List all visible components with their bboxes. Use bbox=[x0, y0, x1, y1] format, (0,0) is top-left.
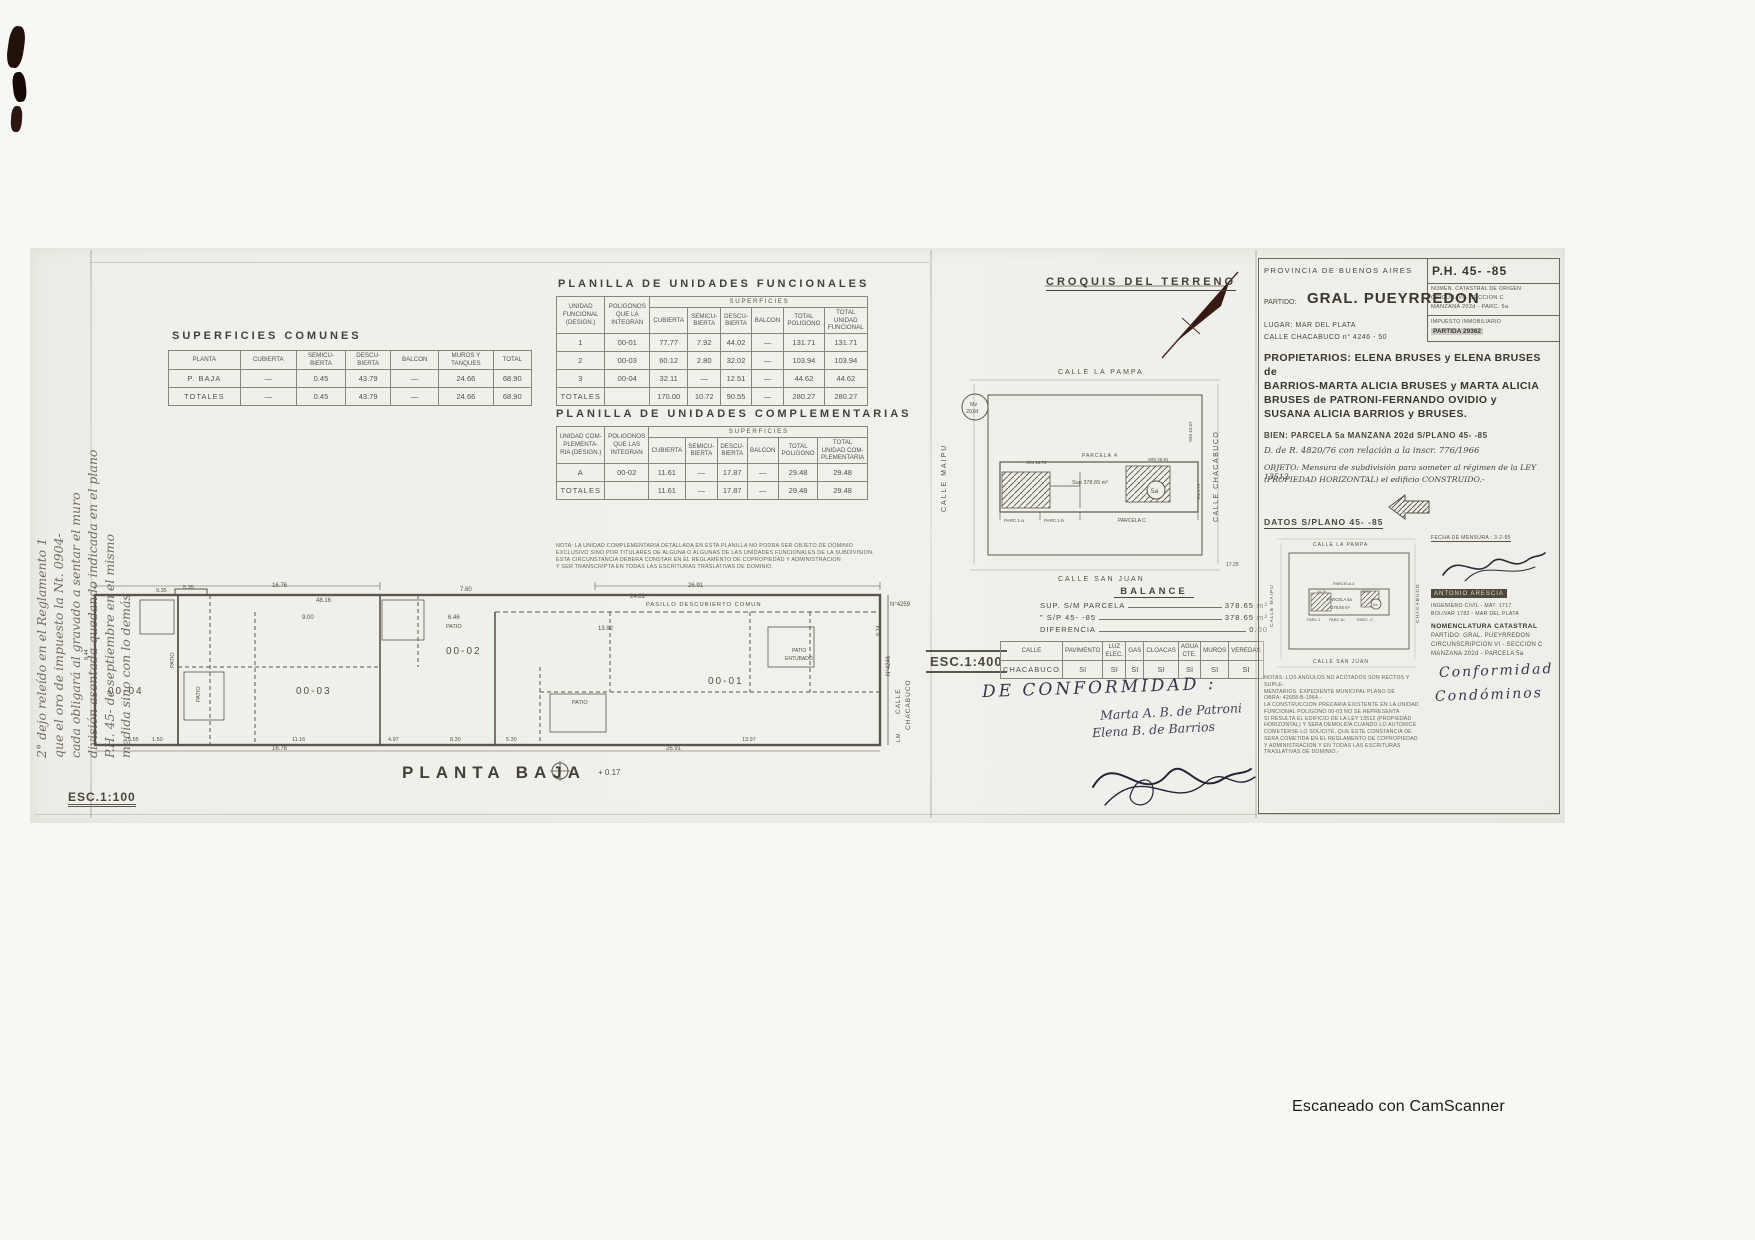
table-cell: 00-02 bbox=[605, 464, 648, 482]
balance-block: BALANCE SUP. S/M PARCELA378.65 m²" S/P 4… bbox=[1040, 586, 1268, 634]
profesional-domicilio: BOLIVAR 1782 - MAR DEL PLATA bbox=[1431, 611, 1519, 617]
partida-number: PARTIDA 29362 bbox=[1431, 328, 1483, 335]
table-header-cell: DESCU- BIERTA bbox=[721, 307, 752, 333]
table-cell: — bbox=[747, 464, 778, 482]
unidades-complementarias-table: UNIDAD COM- PLEMENTA- RIA (DESIGN.)POLIG… bbox=[556, 426, 868, 500]
panel-line bbox=[1427, 315, 1559, 316]
table-cell: 17.87 bbox=[717, 482, 747, 500]
text-line: ESTA CIRCUNSTANCIA DEBERA CONSTAR EN EL … bbox=[556, 557, 876, 564]
text-line: NOTA: LA UNIDAD COMPLEMENTARIA DETALLADA… bbox=[556, 543, 876, 550]
drawing-label: PASILLO DESCUBIERTO COMUN bbox=[646, 602, 762, 608]
table-cell: — bbox=[240, 369, 296, 387]
table-cell: 44.02 bbox=[721, 334, 752, 352]
table-row: TOTALES11.61—17.87—29.4829.48 bbox=[557, 482, 868, 500]
text-line: Y ADMINISTRACION Y EN TODAS LAS ESCRITUR… bbox=[1264, 743, 1426, 750]
dominio-ref: D. de R. 4820/76 con relación a la inscr… bbox=[1264, 446, 1479, 456]
text-line: OBRA: 42658-B-1964.- bbox=[1264, 695, 1426, 702]
drawing-label: 24.81 bbox=[630, 594, 646, 600]
drawing-label: + 0.17 bbox=[598, 768, 621, 777]
drawing-label: ENTUBADO bbox=[785, 656, 813, 662]
table-cell: — bbox=[240, 387, 296, 405]
drawing-label: N°4259 bbox=[890, 602, 911, 608]
drawing-label: 5.55 bbox=[128, 737, 139, 743]
drawing-label: Sup 378.65 m² bbox=[1072, 480, 1108, 486]
bien: BIEN: PARCELA 5a MANZANA 202d S/PLANO 45… bbox=[1264, 431, 1488, 440]
panel-notas: NOTAS: LOS ANGULOS NO ACOTADOS SON RECTO… bbox=[1264, 675, 1426, 756]
drawing-label: PARCELA 4 bbox=[1082, 453, 1118, 459]
table-header-cell: CLOACAS bbox=[1144, 642, 1179, 661]
unidades-funcionales-title: PLANILLA DE UNIDADES FUNCIONALES bbox=[558, 278, 869, 290]
table-header-cell: MUROS Y TANQUES bbox=[439, 351, 493, 370]
table-header-cell: S U P E R F I C I E S bbox=[650, 297, 868, 308]
balance-label: SUP. S/M PARCELA bbox=[1040, 601, 1125, 610]
croquis-labels: CALLE LA PAMPACALLE SAN JUANCALLE MAIPUC… bbox=[941, 369, 1239, 583]
table-cell: 24.66 bbox=[439, 387, 493, 405]
leader-line bbox=[1099, 631, 1246, 632]
drawing-label: PARC.1b bbox=[1329, 618, 1345, 622]
table-cell: 280.27 bbox=[784, 388, 824, 406]
table-row: CHACABUCOSISISISISISISI bbox=[1001, 660, 1264, 678]
table-header-cell: TOTAL POLIGONO bbox=[778, 437, 817, 463]
drawing-label: CALLE LA PAMPA bbox=[1313, 542, 1368, 548]
drawing-label: 48.16 bbox=[316, 598, 332, 604]
drawing-label: PARCELA 5a bbox=[1327, 597, 1352, 602]
superficies-comunes-title: SUPERFICIES COMUNES bbox=[172, 330, 362, 342]
drawing-label: 26.91 bbox=[1361, 590, 1371, 594]
text-line: NOTAS: LOS ANGULOS NO ACOTADOS SON RECTO… bbox=[1264, 675, 1426, 689]
table-cell: 131.71 bbox=[824, 334, 867, 352]
table-header-cell: CUBIERTA bbox=[240, 351, 296, 370]
table-cell: TOTALES bbox=[557, 388, 605, 406]
drawing-label: CHACABUCO bbox=[1415, 583, 1421, 623]
scan-artifact bbox=[11, 71, 27, 102]
plan-walls bbox=[95, 582, 888, 781]
panel-line bbox=[1427, 341, 1559, 342]
drawing-label: 17.25 bbox=[1226, 562, 1239, 568]
nomenclatura-manzana: MANZANA 202d - PARCELA 5a bbox=[1431, 651, 1523, 657]
table-cell: 68.90 bbox=[493, 387, 531, 405]
drawing-label: 16.76 bbox=[1317, 590, 1327, 594]
nomenclatura-circ: CIRCUNSCRIPCION VI - SECCION C bbox=[1431, 642, 1543, 648]
table-cell: P. BAJA bbox=[169, 369, 241, 387]
drawing-label: 5.30 bbox=[506, 737, 517, 743]
propietarios: PROPIETARIOS: ELENA BRUSES y ELENA BRUSE… bbox=[1264, 351, 1556, 421]
table-cell: 10.72 bbox=[688, 388, 721, 406]
table-cell: 280.27 bbox=[824, 388, 867, 406]
table-cell: — bbox=[391, 369, 439, 387]
text-line: EXCLUSIVO SINO POR TITULARES DE ALGUNA O… bbox=[556, 550, 876, 557]
text-line: HORIZONTAL) Y SERA DEMOLIDA CUANDO LO AU… bbox=[1264, 722, 1426, 729]
croquis-scale: ESC.1:400 bbox=[926, 650, 1007, 673]
drawing-label: 378.65 m² bbox=[1331, 605, 1350, 610]
drawing-label: L.M. bbox=[896, 732, 902, 742]
table-cell: 43.79 bbox=[346, 369, 391, 387]
drawing-label: 00-04 bbox=[108, 686, 144, 697]
text-line: TRASLATIVAS DE DOMINIO.- bbox=[1264, 749, 1426, 756]
table-cell: — bbox=[688, 370, 721, 388]
drawing-label: 1.50 bbox=[152, 737, 163, 743]
table-row: 100-0177.777.9244.02—131.71131.71 bbox=[557, 334, 868, 352]
drawing-label: 7.60 bbox=[460, 587, 472, 593]
table-cell: — bbox=[751, 352, 783, 370]
drawing-label: 8.30 bbox=[450, 737, 461, 743]
unidades-complementarias-title: PLANILLA DE UNIDADES COMPLEMENTARIAS bbox=[556, 408, 912, 420]
partido-value: GRAL. PUEYRREDON bbox=[1307, 290, 1480, 307]
table-header-cell: SEMICU- BIERTA bbox=[296, 351, 345, 370]
table-header-cell: TOTAL UNIDAD COM- PLEMENTARIA bbox=[818, 437, 868, 463]
drawing-label: 00-02 bbox=[446, 646, 482, 657]
drawing-label: CHACABUCO bbox=[905, 679, 912, 730]
drawing-label: PATIO bbox=[170, 652, 176, 668]
drawing-label: PLANTA BAJA bbox=[402, 763, 586, 782]
table-cell: 0.45 bbox=[296, 369, 345, 387]
drawing-label: 8.74 bbox=[876, 625, 882, 636]
drawing-label: 4.97 bbox=[388, 737, 399, 743]
table-header-cell: BALCON bbox=[747, 437, 778, 463]
table-cell: 00-01 bbox=[605, 334, 650, 352]
table-header-cell: SEMICU- BIERTA bbox=[688, 307, 721, 333]
table-cell: 131.71 bbox=[784, 334, 824, 352]
conformidad-hand-2: Condóminos bbox=[1435, 685, 1543, 705]
text-line: COMETERSE LO SOLICITE, QUE ESTE CONSTANC… bbox=[1264, 729, 1426, 736]
balance-row: " S/P 45- -85378.65 m² bbox=[1040, 613, 1268, 622]
drawing-label: CALLE LA PAMPA bbox=[1058, 369, 1144, 376]
table-cell: 68.90 bbox=[493, 369, 531, 387]
drawing-label: PARCELA 4 bbox=[1333, 581, 1355, 586]
drawing-label: 26.91 bbox=[666, 746, 682, 752]
table-header-cell: DESCU- BIERTA bbox=[717, 437, 747, 463]
drawing-label: PARC. C bbox=[1357, 617, 1373, 622]
balance-rows: SUP. S/M PARCELA378.65 m²" S/P 45- -8537… bbox=[1040, 601, 1268, 634]
table-cell: TOTALES bbox=[557, 482, 605, 500]
table-header-cell: AGUA CTE. bbox=[1178, 642, 1200, 661]
drawing-label: 5a bbox=[1373, 602, 1378, 607]
table-cell: TOTALES bbox=[169, 387, 241, 405]
table-row: TOTALES—0.4543.79—24.6668.90 bbox=[169, 387, 532, 405]
table-cell: 29.48 bbox=[778, 464, 817, 482]
scan-artifact bbox=[5, 25, 27, 69]
table-row: TOTALES170.0010.7290.55—280.27280.27 bbox=[557, 388, 868, 406]
table-row: P. BAJA—0.4543.79—24.6668.90 bbox=[169, 369, 532, 387]
drawing-label: 5a bbox=[1151, 488, 1159, 495]
table-header-cell: POLIGONOS QUE LAS INTEGRAN bbox=[605, 427, 648, 464]
table-cell bbox=[605, 482, 648, 500]
drawing-label: Mz bbox=[970, 402, 978, 408]
drawing-label: 5.35 bbox=[183, 585, 194, 591]
drawing-label: PATIO bbox=[792, 648, 806, 654]
table-cell: — bbox=[751, 370, 783, 388]
text-line: SUSANA ALICIA BARRIOS y BRUSES. bbox=[1264, 407, 1556, 421]
drawing-label: CALLE SAN JUAN bbox=[1313, 659, 1369, 665]
table-header-cell: MUROS bbox=[1201, 642, 1229, 661]
table-cell: 44.62 bbox=[784, 370, 824, 388]
table-header-cell: CUBIERTA bbox=[648, 437, 685, 463]
table-cell: — bbox=[747, 482, 778, 500]
lugar: LUGAR: MAR DEL PLATA bbox=[1264, 322, 1356, 329]
table-header-cell: BALCON bbox=[751, 307, 783, 333]
table-header-cell: DESCU- BIERTA bbox=[346, 351, 391, 370]
table-cell: 12.51 bbox=[721, 370, 752, 388]
table-cell: A bbox=[557, 464, 605, 482]
calle: CALLE CHACABUCO n° 4246 - 50 bbox=[1264, 334, 1387, 341]
mini-croquis: CALLE LA PAMPACALLE SAN JUANCALLE MAIPUC… bbox=[1261, 531, 1431, 671]
ph-number: P.H. 45- -85 bbox=[1432, 264, 1507, 278]
table-cell: 43.79 bbox=[346, 387, 391, 405]
table-cell: — bbox=[751, 388, 783, 406]
drawing-label: 6.46 bbox=[448, 615, 460, 621]
hatched-arrow-icon bbox=[1387, 493, 1431, 523]
table-cell: 11.61 bbox=[648, 464, 685, 482]
drawing-label: PARC.1-b bbox=[1044, 518, 1064, 523]
drawing-label: 16.76 bbox=[272, 746, 288, 752]
table-cell: 0.45 bbox=[296, 387, 345, 405]
table-cell: 29.48 bbox=[818, 464, 868, 482]
objeto-line2: (PROPIEDAD HORIZONTAL) el edificio CONST… bbox=[1264, 475, 1556, 484]
table-cell: 17.87 bbox=[717, 464, 747, 482]
table-cell: CHACABUCO bbox=[1001, 660, 1063, 678]
table-header-row: UNIDAD COM- PLEMENTA- RIA (DESIGN.)POLIG… bbox=[557, 427, 868, 438]
text-line: BRUSES de PATRONI-FERNANDO OVIDIO y bbox=[1264, 393, 1556, 407]
datos-splano: DATOS S/PLANO 45- -85 bbox=[1264, 517, 1383, 529]
table-header-cell: BALCON bbox=[391, 351, 439, 370]
nomenclatura-title: NOMENCLATURA CATASTRAL bbox=[1431, 623, 1537, 630]
drawing-label: PARCELA C bbox=[1118, 518, 1146, 524]
table-header-cell: TOTAL POLIGONO bbox=[784, 307, 824, 333]
table-cell: 32.02 bbox=[721, 352, 752, 370]
table-cell: 103.94 bbox=[824, 352, 867, 370]
scan-artifact bbox=[10, 106, 23, 133]
drawing-label: PARC.1 bbox=[1307, 618, 1320, 622]
balance-label: DIFERENCIA bbox=[1040, 625, 1096, 634]
drawing-label: 11.16 bbox=[292, 737, 305, 743]
table-header-cell: LUZ ELEC. bbox=[1103, 642, 1126, 661]
table-cell: 29.48 bbox=[778, 482, 817, 500]
superficies-comunes-table: PLANTACUBIERTASEMICU- BIERTADESCU- BIERT… bbox=[168, 350, 532, 406]
table-cell: 29.48 bbox=[818, 482, 868, 500]
text-line: SI RESULTA EL EDIFICIO DE LA LEY 13512 (… bbox=[1264, 716, 1426, 723]
drawing-label: CALLE CHACABUCO bbox=[1213, 431, 1220, 522]
table-cell: — bbox=[751, 334, 783, 352]
table-header-cell: CUBIERTA bbox=[650, 307, 688, 333]
table-cell: 3 bbox=[557, 370, 605, 388]
drawing-label: PATIO bbox=[446, 624, 462, 630]
table-cell: SI bbox=[1126, 660, 1144, 678]
balance-title: BALANCE bbox=[1114, 586, 1194, 598]
drawing-label: 00-01 bbox=[708, 676, 744, 687]
table-row: 200-0360.122.8032.02—103.94103.94 bbox=[557, 352, 868, 370]
text-line: PROPIETARIOS: ELENA BRUSES y ELENA BRUSE… bbox=[1264, 351, 1556, 379]
floor-plan-drawing: 9.355.3516.7648.169.007.606.4624.8126.91… bbox=[50, 572, 930, 822]
table-cell: — bbox=[685, 482, 717, 500]
provincia-label: PROVINCIA DE BUENOS AIRES bbox=[1264, 266, 1413, 275]
plan-scale: ESC.1:100 bbox=[68, 790, 136, 807]
mini-croquis-labels: CALLE LA PAMPACALLE SAN JUANCALLE MAIPUC… bbox=[1269, 542, 1421, 665]
drawing-label: N°4246 bbox=[886, 655, 892, 676]
balance-row: SUP. S/M PARCELA378.65 m² bbox=[1040, 601, 1268, 610]
text-line: SERA COMETIDA EN EL REGLAMENTO DE COPROP… bbox=[1264, 736, 1426, 743]
table-cell: 90.55 bbox=[721, 388, 752, 406]
drawing-label: CALLE MAIPU bbox=[1269, 584, 1275, 627]
profesional-nombre: ANTONIO ARESCIA bbox=[1431, 589, 1507, 598]
table-cell: 11.61 bbox=[648, 482, 685, 500]
drawing-label: CALLE SAN JUAN bbox=[1058, 576, 1145, 583]
text-line: FUNCIONAL POLIGONO 00-03 NO SE REPRESENT… bbox=[1264, 709, 1426, 716]
table-header-row: CALLEPAVIMENTOLUZ ELEC.GASCLOACASAGUA CT… bbox=[1001, 642, 1264, 661]
text-line: 2° dejo releído en el Reglamento 1 bbox=[34, 450, 51, 758]
drawing-label: CALLE bbox=[895, 688, 902, 714]
table-cell bbox=[605, 388, 650, 406]
camscanner-footer: Escaneado con CamScanner bbox=[1292, 1098, 1505, 1116]
leader-line bbox=[1128, 607, 1221, 608]
croquis-title: CROQUIS DEL TERRENO bbox=[1046, 276, 1236, 291]
table-cell: 44.62 bbox=[824, 370, 867, 388]
drawing-label: PARC.1-a bbox=[1004, 518, 1024, 523]
balance-row: DIFERENCIA0.00 bbox=[1040, 625, 1268, 634]
drawing-label: 202d bbox=[966, 409, 978, 415]
table-header-cell: S U P E R F I C I E S bbox=[648, 427, 867, 438]
profesional-titulo: INGENIERO CIVIL - MAT. 1717 bbox=[1431, 603, 1511, 609]
table-header-row: UNIDAD FUNCIONAL (DESIGN.)POLIGONOS QUE … bbox=[557, 297, 868, 308]
table-cell: 77.77 bbox=[650, 334, 688, 352]
drawing-label: 9.00 bbox=[302, 615, 314, 621]
drawing-label: PATIO bbox=[196, 686, 202, 702]
fecha-mensura: FECHA DE MENSURA : 3-2-85 bbox=[1431, 535, 1511, 542]
croquis-lines bbox=[962, 272, 1238, 570]
panel-line bbox=[1427, 283, 1559, 284]
table-cell: — bbox=[391, 387, 439, 405]
table-cell: 1 bbox=[557, 334, 605, 352]
signature-scrawl bbox=[1075, 735, 1265, 820]
table-header-cell: TOTAL bbox=[493, 351, 531, 370]
drawing-label: 13.92 bbox=[598, 626, 614, 632]
table-header-cell: TOTAL UNIDAD FUNCIONAL bbox=[824, 307, 867, 333]
table-cell: 00-03 bbox=[605, 352, 650, 370]
drawing-label: 16.76 bbox=[272, 583, 288, 589]
text-line: Y SER TRANSCRIPTA EN TODAS LAS ESCRITURA… bbox=[556, 564, 876, 571]
leader-line bbox=[1099, 619, 1222, 620]
text-line: MENTARIOS. EXPEDIENTE MUNICIPAL PLANO DE bbox=[1264, 689, 1426, 696]
table-cell: 60.12 bbox=[650, 352, 688, 370]
unidades-funcionales-table: UNIDAD FUNCIONAL (DESIGN.)POLIGONOS QUE … bbox=[556, 296, 868, 406]
drawing-label: S/M 26.91 bbox=[1148, 457, 1169, 462]
drawing-label: S/M 16.76 bbox=[1026, 460, 1047, 465]
impuesto-label: IMPUESTO INMOBILIARIO bbox=[1431, 319, 1501, 325]
table-cell: 24.66 bbox=[439, 369, 493, 387]
balance-label: " S/P 45- -85 bbox=[1040, 613, 1096, 622]
professional-signature bbox=[1435, 545, 1550, 587]
drawing-label: 26.91 bbox=[688, 583, 704, 589]
table-header-cell: PAVIMENTO bbox=[1062, 642, 1102, 661]
drawing-label: 8.44 bbox=[84, 649, 90, 660]
table-header-cell: CALLE bbox=[1001, 642, 1063, 661]
table-header-cell: POLIGONOS QUE LA INTEGRAN bbox=[605, 297, 650, 334]
drawing-label: S/M 43.67 bbox=[1188, 421, 1193, 442]
table-cell: 2.80 bbox=[688, 352, 721, 370]
drawing-label: 13.97 bbox=[742, 737, 756, 743]
complementarias-nota: NOTA: LA UNIDAD COMPLEMENTARIA DETALLADA… bbox=[556, 543, 876, 571]
text-line: LA CONSTRUCCION PRECARIA EXISTENTE EN LA… bbox=[1264, 702, 1426, 709]
drawing-label: 00-03 bbox=[296, 686, 332, 697]
table-header-cell: UNIDAD FUNCIONAL (DESIGN.) bbox=[557, 297, 605, 334]
table-cell: 7.92 bbox=[688, 334, 721, 352]
plan-labels: 9.355.3516.7648.169.007.606.4624.8126.91… bbox=[84, 583, 912, 782]
table-header-cell: SEMICU- BIERTA bbox=[685, 437, 717, 463]
conformidad-hand-1: Conformidad bbox=[1439, 661, 1554, 681]
table-header-cell: PLANTA bbox=[169, 351, 241, 370]
drawing-label: PATIO bbox=[572, 700, 588, 706]
nomenclatura-partido: PARTIDO: GRAL. PUEYRREDON bbox=[1431, 633, 1530, 639]
table-row: A00-0211.61—17.87—29.4829.48 bbox=[557, 464, 868, 482]
table-cell: 32.11 bbox=[650, 370, 688, 388]
text-line: BARRIOS-MARTA ALICIA BRUSES y MARTA ALIC… bbox=[1264, 379, 1556, 393]
table-header-cell: UNIDAD COM- PLEMENTA- RIA (DESIGN.) bbox=[557, 427, 605, 464]
table-row: 300-0432.11—12.51—44.6244.62 bbox=[557, 370, 868, 388]
table-cell: 2 bbox=[557, 352, 605, 370]
table-cell: SI bbox=[1062, 660, 1102, 678]
sheet-top-edge bbox=[90, 262, 930, 263]
table-header-row: PLANTACUBIERTASEMICU- BIERTADESCU- BIERT… bbox=[169, 351, 532, 370]
table-header-cell: GAS bbox=[1126, 642, 1144, 661]
table-cell: 103.94 bbox=[784, 352, 824, 370]
drawing-label: 9.35 bbox=[156, 588, 167, 594]
table-cell: — bbox=[685, 464, 717, 482]
table-cell: SI bbox=[1103, 660, 1126, 678]
servicios-table: CALLEPAVIMENTOLUZ ELEC.GASCLOACASAGUA CT… bbox=[1000, 641, 1264, 679]
partido-label: PARTIDO: bbox=[1264, 299, 1296, 306]
title-block-panel: PROVINCIA DE BUENOS AIRES P.H. 45- -85 N… bbox=[1258, 258, 1560, 814]
drawing-label: S/M 8.74 bbox=[1196, 483, 1201, 500]
table-cell: 170.00 bbox=[650, 388, 688, 406]
drawing-label: CALLE MAIPU bbox=[941, 444, 948, 512]
table-cell: 00-04 bbox=[605, 370, 650, 388]
